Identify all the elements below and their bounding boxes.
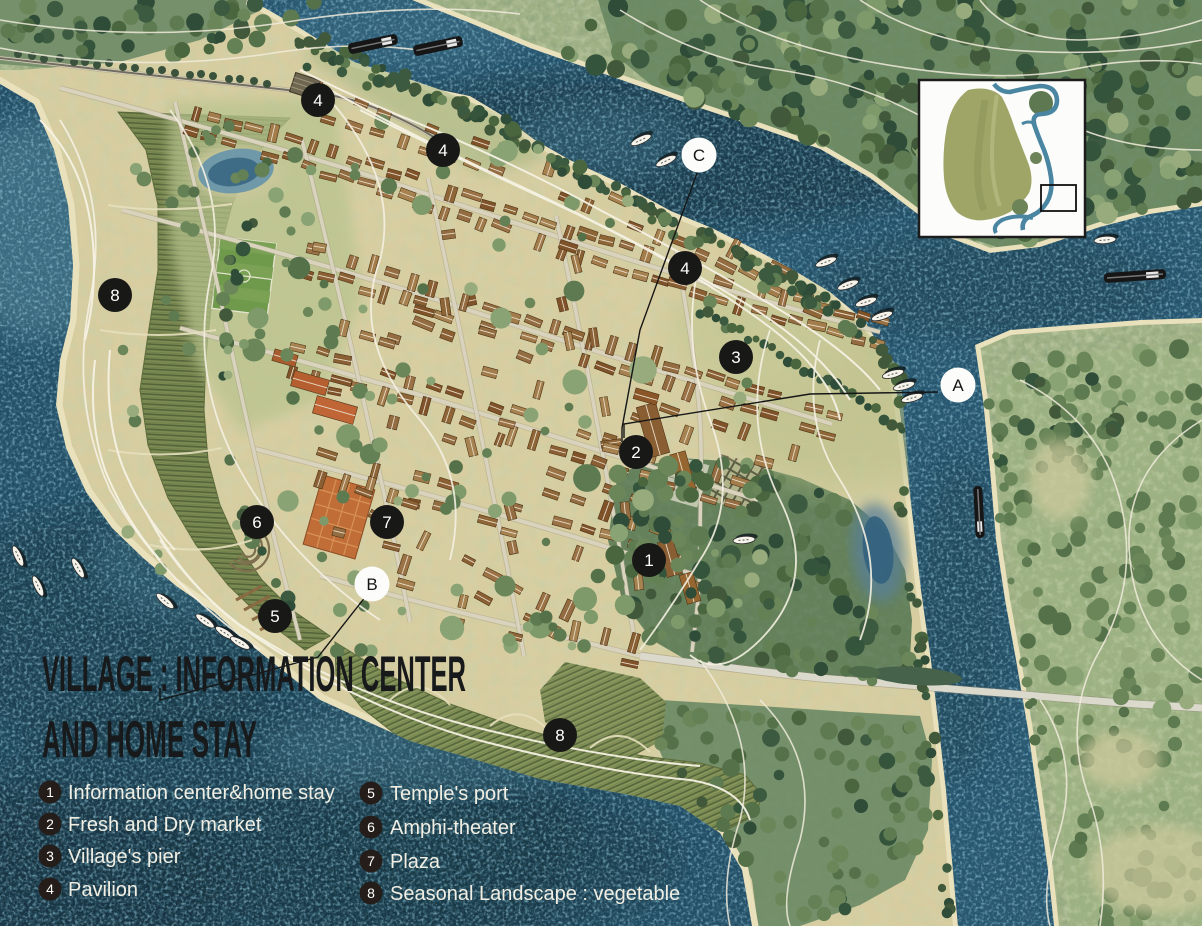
svg-text:AND HOME STAY: AND HOME STAY (42, 711, 257, 769)
svg-text:A: A (952, 376, 964, 395)
svg-text:Pavilion: Pavilion (68, 879, 138, 901)
svg-text:5: 5 (367, 785, 375, 801)
svg-text:B: B (366, 575, 377, 594)
svg-text:1: 1 (46, 784, 54, 800)
svg-text:7: 7 (382, 513, 391, 532)
svg-text:Plaza: Plaza (390, 851, 441, 873)
svg-text:8: 8 (110, 286, 119, 305)
svg-text:7: 7 (367, 853, 375, 869)
svg-text:4: 4 (680, 259, 689, 278)
svg-text:VILLAGE : INFORMATION CENTER: VILLAGE : INFORMATION CENTER (42, 646, 466, 702)
svg-text:8: 8 (555, 726, 564, 745)
svg-text:1: 1 (644, 551, 653, 570)
svg-text:6: 6 (252, 513, 261, 532)
svg-text:4: 4 (438, 141, 447, 160)
svg-text:Temple's port: Temple's port (390, 783, 509, 805)
svg-text:4: 4 (46, 881, 54, 897)
svg-text:Amphi-theater: Amphi-theater (390, 817, 516, 839)
svg-text:4: 4 (313, 91, 322, 110)
svg-text:8: 8 (367, 885, 375, 901)
svg-text:2: 2 (631, 443, 640, 462)
svg-text:C: C (693, 146, 705, 165)
svg-text:3: 3 (46, 848, 54, 864)
svg-text:Information center&home stay: Information center&home stay (68, 782, 335, 804)
svg-text:Seasonal Landscape : vegetabl: Seasonal Landscape : vegetable (390, 883, 680, 905)
svg-text:3: 3 (731, 348, 740, 367)
svg-text:6: 6 (367, 819, 375, 835)
svg-text:Fresh and Dry market: Fresh and Dry market (68, 814, 262, 836)
svg-text:Village's pier: Village's pier (68, 846, 181, 868)
svg-text:2: 2 (46, 816, 54, 832)
svg-text:5: 5 (270, 607, 279, 626)
